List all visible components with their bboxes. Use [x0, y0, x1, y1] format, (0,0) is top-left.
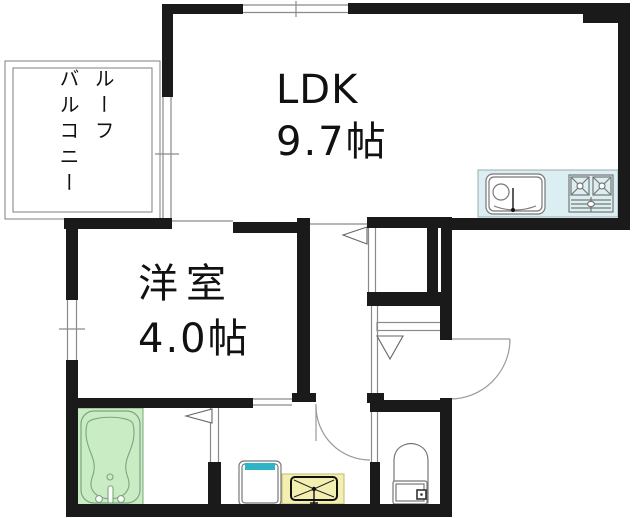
ldk-size-label: 9.7帖 [276, 122, 388, 162]
kitchen-sink-icon [486, 174, 545, 214]
kitchen-counter [478, 170, 618, 217]
window-western-room [59, 300, 85, 360]
closet-sliding-door [369, 228, 376, 292]
roof-balcony-label: ルーフ バルコニー [48, 68, 120, 228]
roof-balcony-label-line1: ルーフ [85, 68, 120, 228]
entrance-step-line [372, 306, 378, 398]
sliding-door-triangle-bathroom [186, 409, 212, 423]
window-ldk-top [243, 1, 348, 17]
door-arcs [316, 339, 510, 460]
washroom-side-door [253, 399, 292, 405]
toilet-door [372, 412, 378, 462]
floor-plan: LDK 9.7帖 洋室 4.0帖 ルーフ バルコニー [0, 0, 640, 518]
western-room-label: 洋室 [138, 264, 234, 304]
washbasin-icon [282, 474, 344, 506]
roof-balcony-label-line2: バルコニー [50, 68, 85, 228]
toilet-icon [393, 444, 428, 505]
window-ldk-balcony [155, 97, 179, 218]
bathtub-icon [77, 408, 143, 507]
washroom-door-arc [316, 404, 370, 460]
sliding-door-triangle-entrance [377, 336, 403, 359]
sliding-door-triangle-ldk [343, 227, 367, 244]
washing-machine-pan-icon [239, 461, 281, 506]
ldk-label: LDK [276, 70, 358, 110]
western-room-size-label: 4.0帖 [138, 319, 250, 359]
entrance-door-arc [450, 339, 510, 399]
shoe-cabinet [377, 323, 443, 331]
